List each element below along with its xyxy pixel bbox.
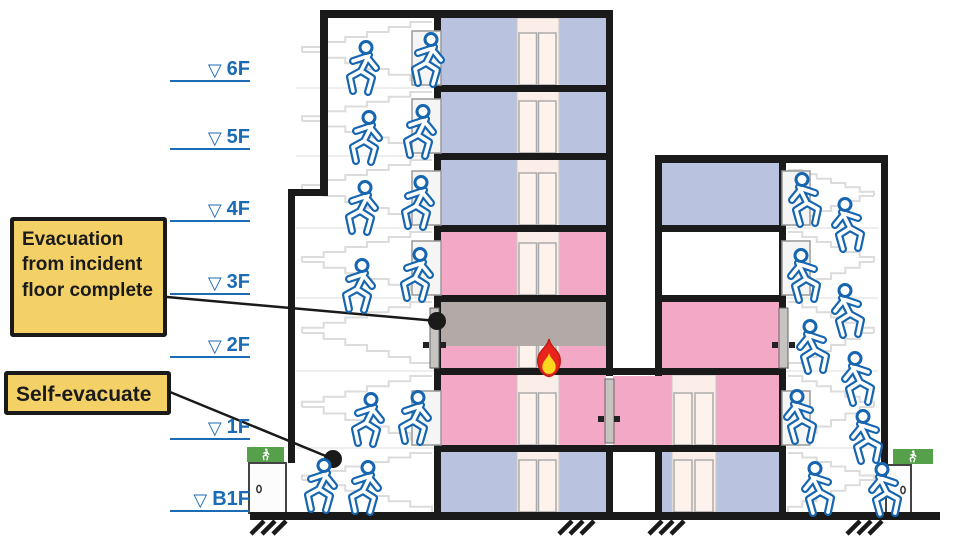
floor-label-5f: ▽ 5F	[170, 126, 250, 150]
evacuation-diagram: ▽ 6F ▽ 5F ▽ 4F ▽ 3F ▽ 2F ▽ 1F ▽ B1F Evac…	[0, 0, 960, 540]
running-person-icon	[352, 462, 378, 513]
floor-label-2f: ▽ 2F	[170, 334, 250, 358]
running-person-icon	[835, 199, 861, 250]
floor-label-text: 4F	[227, 199, 250, 219]
exit-door	[249, 463, 286, 513]
running-person-icon	[355, 394, 381, 445]
connecting-corridor	[613, 376, 662, 445]
floor-label-4f: ▽ 4F	[170, 198, 250, 222]
level-marker-icon: ▽	[208, 61, 222, 79]
ground-hatch-icon	[251, 521, 882, 534]
level-marker-icon: ▽	[208, 129, 222, 147]
floor-label-3f: ▽ 3F	[170, 271, 250, 295]
floor-label-text: 5F	[227, 127, 250, 147]
running-person-icon	[805, 463, 831, 514]
leader-line	[167, 297, 437, 321]
running-person-icon	[349, 182, 375, 233]
running-person-icon	[346, 260, 372, 311]
callout-incident-floor-complete: Evacuation from incident floor complete	[10, 217, 167, 337]
leader-dot	[428, 312, 446, 330]
running-person-icon	[845, 353, 871, 404]
level-marker-icon: ▽	[208, 201, 222, 219]
callout-self-evacuate: Self-evacuate	[4, 371, 171, 415]
level-marker-icon: ▽	[208, 419, 222, 437]
floor-label-text: B1F	[212, 489, 250, 509]
floor-label-text: 3F	[227, 272, 250, 292]
running-person-icon	[853, 411, 879, 462]
floor-label-b1f: ▽ B1F	[170, 488, 250, 512]
left-exit	[247, 447, 286, 513]
floor-label-text: 2F	[227, 335, 250, 355]
smoke-layer-2f	[441, 302, 606, 346]
running-person-icon	[800, 321, 826, 372]
level-marker-icon: ▽	[208, 274, 222, 292]
floor-label-1f: ▽ 1F	[170, 416, 250, 440]
running-person-icon	[350, 42, 376, 93]
right-elevator-shaft	[672, 375, 716, 512]
running-person-icon	[835, 285, 861, 336]
running-person-icon	[353, 112, 379, 163]
ground-line	[250, 512, 940, 534]
level-marker-icon: ▽	[208, 337, 222, 355]
main-elevator-shaft	[517, 18, 559, 512]
floor-label-text: 1F	[227, 417, 250, 437]
running-person-icon	[308, 460, 334, 511]
level-marker-icon: ▽	[193, 491, 207, 509]
floor-label-text: 6F	[227, 59, 250, 79]
floor-label-6f: ▽ 6F	[170, 58, 250, 82]
